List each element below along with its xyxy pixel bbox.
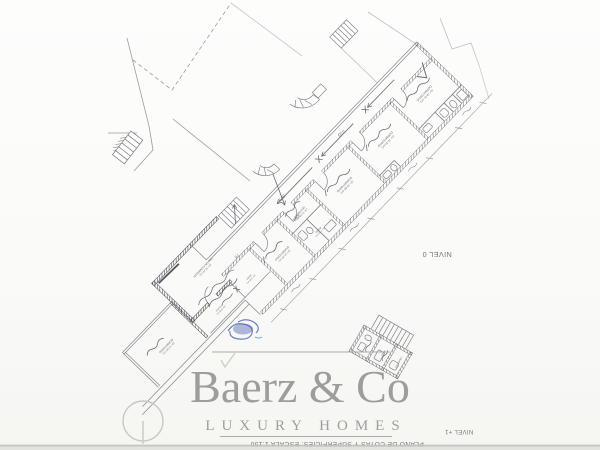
brand-logo-icon xyxy=(123,401,163,444)
brand-wordmark: Baerz & Co xyxy=(190,361,410,412)
watermark: Baerz & Co LUXURY HOMES xyxy=(123,352,410,444)
footer-level-label: NIVEL +1 xyxy=(444,428,473,434)
blue-ink-scribble xyxy=(228,320,262,339)
brand-tagline: LUXURY HOMES xyxy=(205,418,406,434)
dimension-line xyxy=(266,89,494,325)
scan-edge-shadow xyxy=(0,445,600,447)
level-label: NIVEL 0 xyxy=(422,250,452,259)
door-arcs xyxy=(200,88,412,306)
scanned-floor-plan-page: 5'23 59'9 6'65 7'5 DORMITORIO (S= 18.51 … xyxy=(0,0,600,450)
hand-dim-1: 59'9 xyxy=(277,193,287,203)
exterior-stair-top-left xyxy=(109,129,142,164)
hand-dim-0: 5'23 xyxy=(336,129,346,138)
stair-top xyxy=(330,20,394,83)
floor-plan-canvas: 5'23 59'9 6'65 7'5 DORMITORIO (S= 18.51 … xyxy=(0,0,600,450)
pencil-corridor-arrows xyxy=(225,37,432,249)
room-label: SALON-COMEDOR xyxy=(192,257,213,279)
stair-fan-upper xyxy=(290,78,328,116)
